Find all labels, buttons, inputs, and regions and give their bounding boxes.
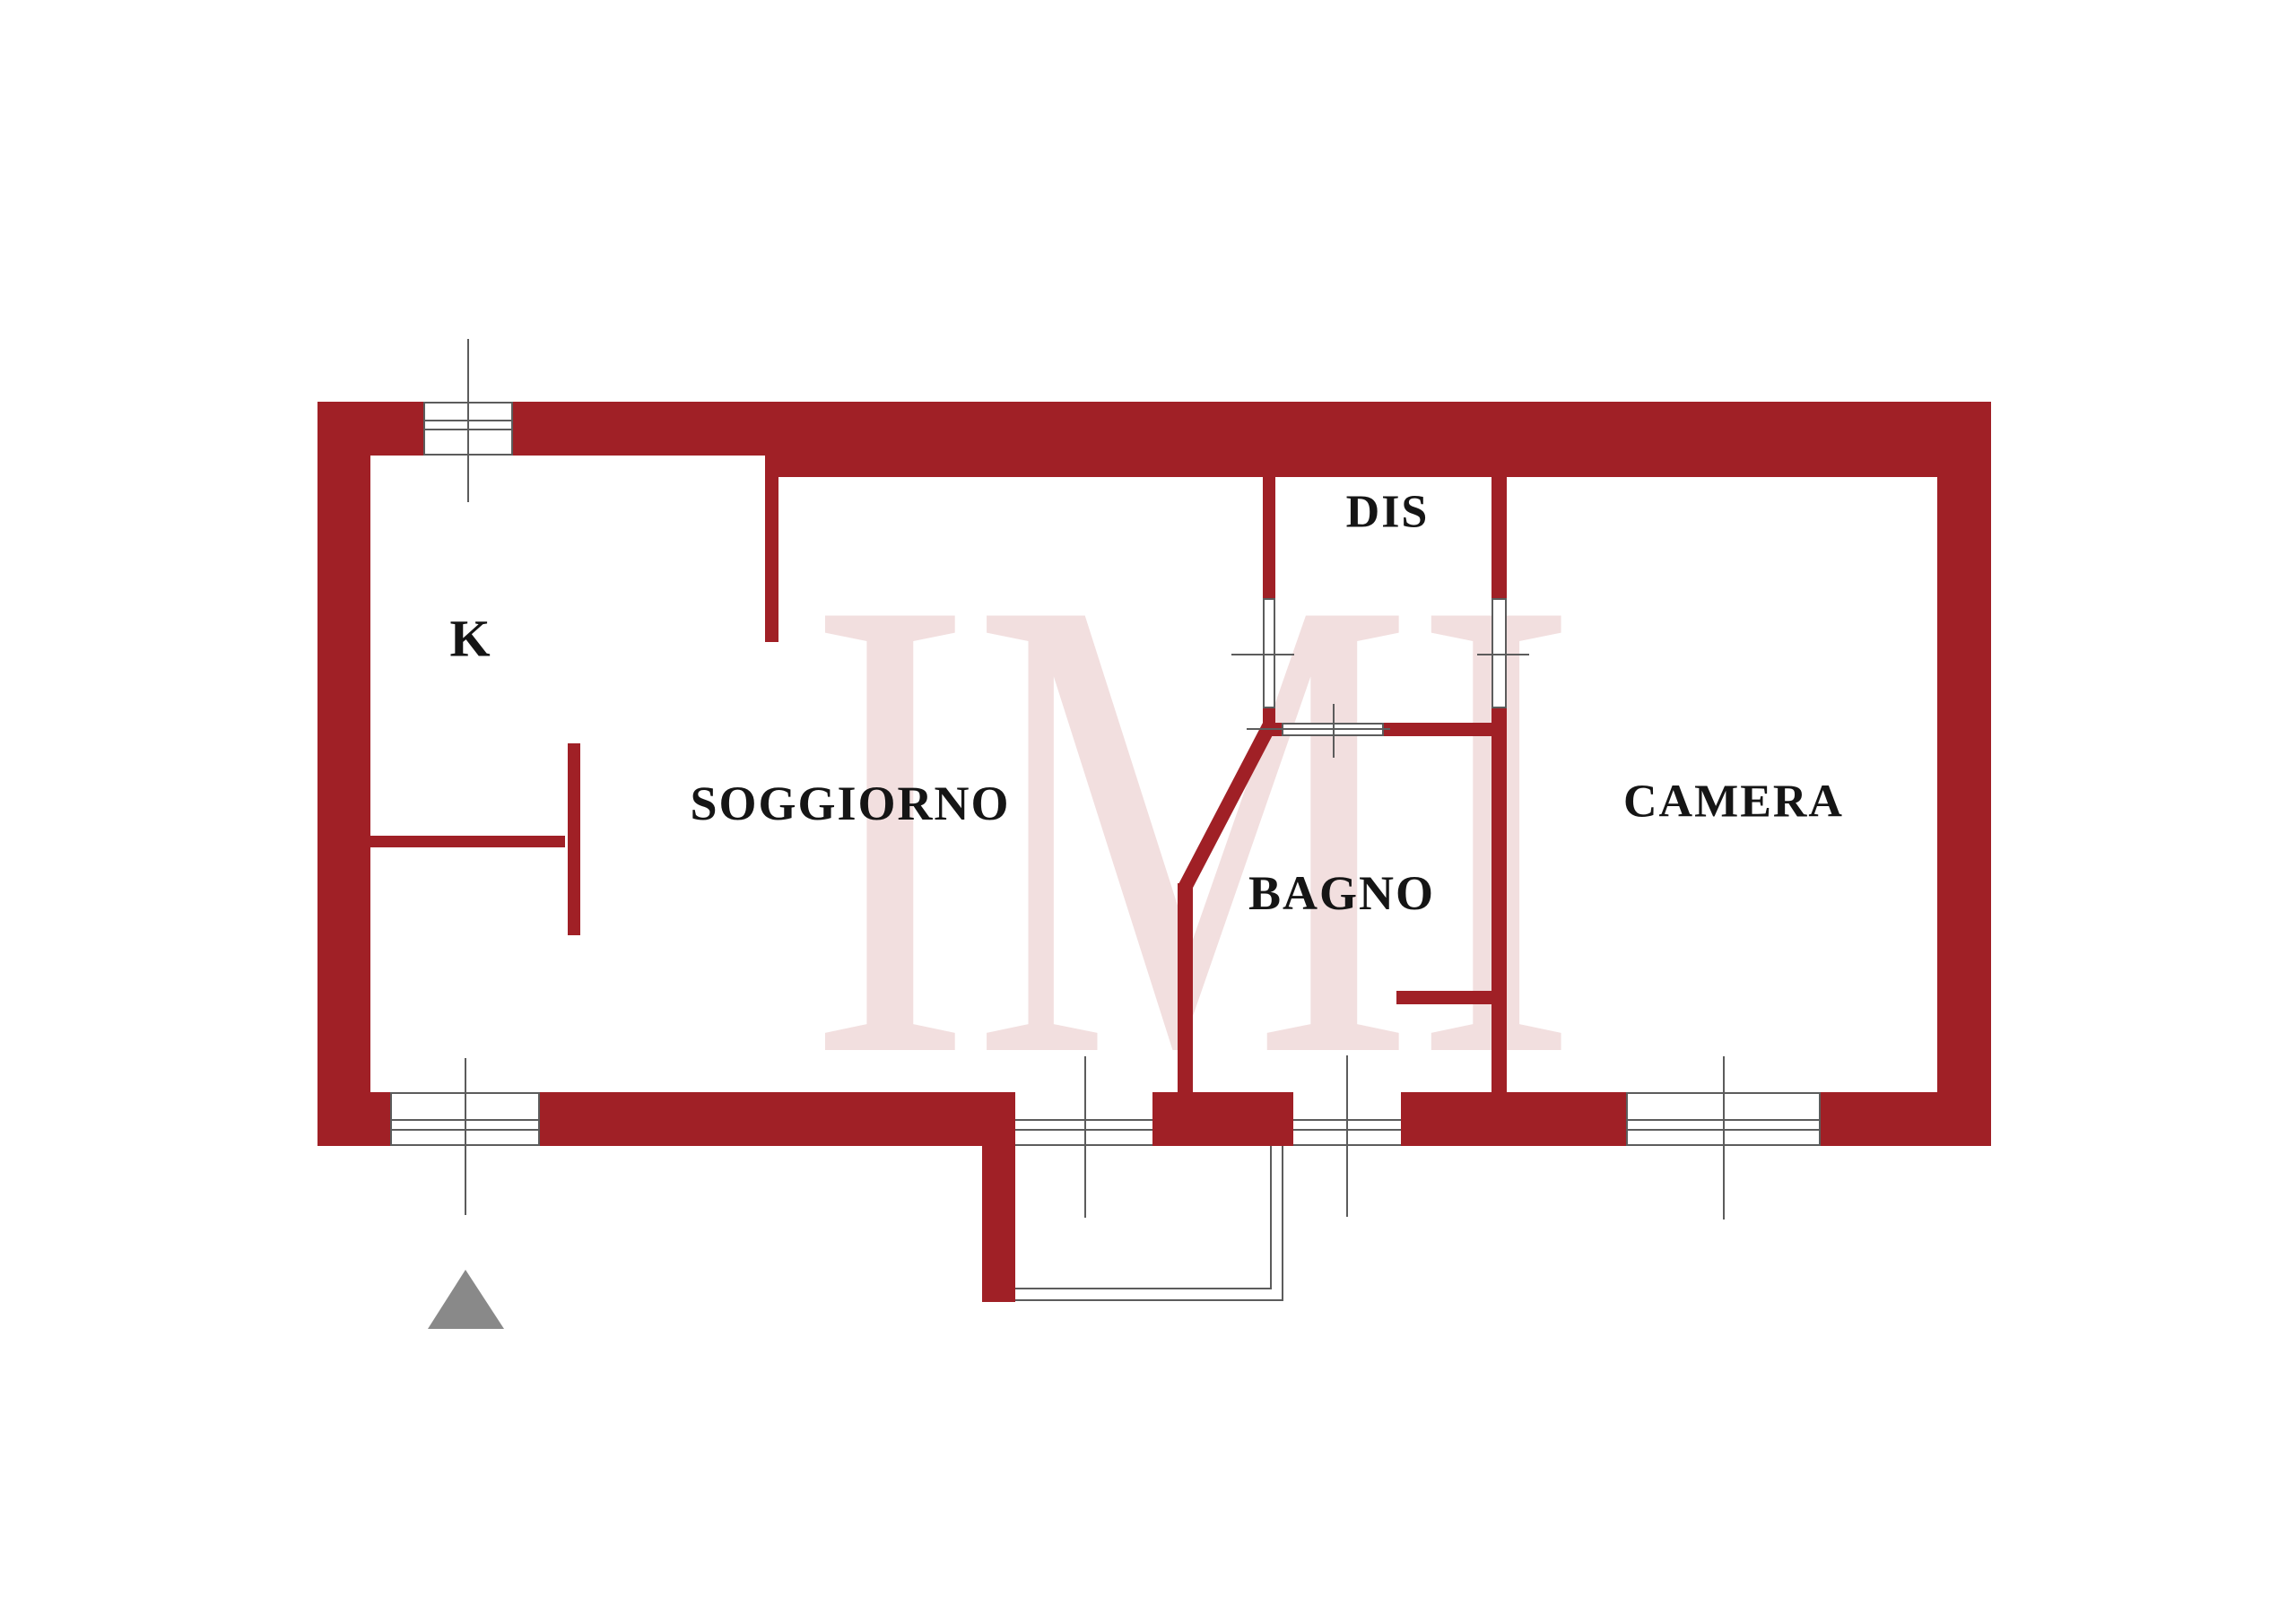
- window-centerline: [465, 1058, 466, 1215]
- wall-kitchen-living-divider: [765, 453, 778, 642]
- wall-bathroom-left: [1178, 883, 1193, 1092]
- room-label-kitchen: K: [449, 609, 491, 669]
- room-label-living: SOGGIORNO: [690, 776, 1010, 831]
- floor-plan: IMI: [0, 0, 2296, 1623]
- room-label-bedroom: CAMERA: [1623, 776, 1844, 829]
- wall-dis-right-upper: [1492, 477, 1507, 598]
- wall-left: [317, 402, 370, 1146]
- porch-step-line: [1282, 1146, 1283, 1300]
- door-tick-line: [1231, 654, 1294, 655]
- window-centerline: [1723, 1056, 1725, 1219]
- wall-bathroom-shelf: [1396, 991, 1507, 1004]
- north-triangle-icon: [428, 1270, 504, 1329]
- wall-bath-bedroom-divider: [1492, 708, 1507, 1092]
- wall-dis-left-upper: [1263, 477, 1275, 598]
- door-centerline: [1084, 1056, 1086, 1218]
- porch-step-line: [1015, 1299, 1283, 1301]
- room-label-hallway: DIS: [1346, 486, 1430, 539]
- wall-porch-left: [982, 1146, 1015, 1302]
- wall-top-right: [773, 402, 1991, 477]
- door-tick-line: [1477, 654, 1529, 655]
- window-centerline: [467, 339, 469, 502]
- wall-right: [1937, 402, 1991, 1146]
- wall-dis-bottom-right: [1384, 723, 1507, 736]
- porch-step-line: [1015, 1288, 1272, 1289]
- door-tick-line: [1247, 728, 1390, 730]
- wall-top-left: [317, 402, 777, 456]
- wall-kitchen-tbar: [568, 743, 580, 935]
- wall-kitchen-partial: [370, 836, 565, 847]
- room-label-bathroom: BAGNO: [1248, 865, 1435, 921]
- door-tick-line: [1333, 704, 1335, 758]
- door-centerline: [1346, 1055, 1348, 1217]
- porch-step-line: [1270, 1146, 1272, 1289]
